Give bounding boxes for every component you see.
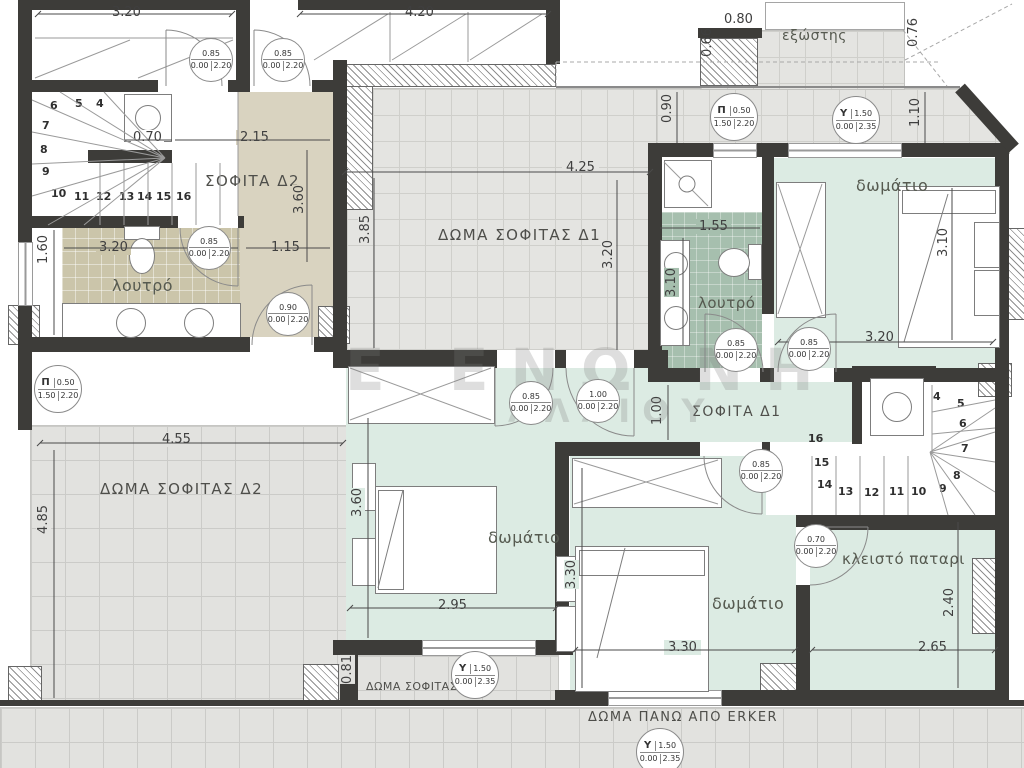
- door-tag-bedroom-bottom: 0.85 0.002.20: [739, 449, 783, 493]
- door-tag-bath-right: 0.85 0.002.20: [714, 328, 758, 372]
- door-tag-hall: 1.00 0.002.20: [576, 379, 620, 423]
- floor-plan: Ε ΕΝΩ ΝΗ ΑΛΑΙΟΥ ΣΟΦΙΤΑ Δ2 ΔΩΜΑ ΣΟΦΙΤΑΣ Δ…: [0, 0, 1024, 768]
- door-tag-bedroom-right: 0.85 0.002.20: [787, 327, 831, 371]
- door-tag-closet1: 0.85 0.002.20: [189, 38, 233, 82]
- window-tag-p-left: Π0.50 1.502.20: [34, 365, 82, 413]
- window-tag-y-erker: Υ1.50 0.002.35: [636, 728, 684, 768]
- door-tag-bath-left: 0.85 0.002.20: [187, 226, 231, 270]
- door-tag-terrace-d2: 0.90 0.002.20: [266, 292, 310, 336]
- door-tag-patari: 0.70 0.002.20: [794, 524, 838, 568]
- door-tag-closet2: 0.85 0.002.20: [261, 38, 305, 82]
- window-tag-y-doma1: Υ1.50 0.002.35: [451, 651, 499, 699]
- window-tag-y-top: Υ1.50 0.002.35: [832, 96, 880, 144]
- window-tag-p-top: Π0.50 1.502.20: [710, 93, 758, 141]
- door-tag-bedroom-mid: 0.85 0.002.20: [509, 381, 553, 425]
